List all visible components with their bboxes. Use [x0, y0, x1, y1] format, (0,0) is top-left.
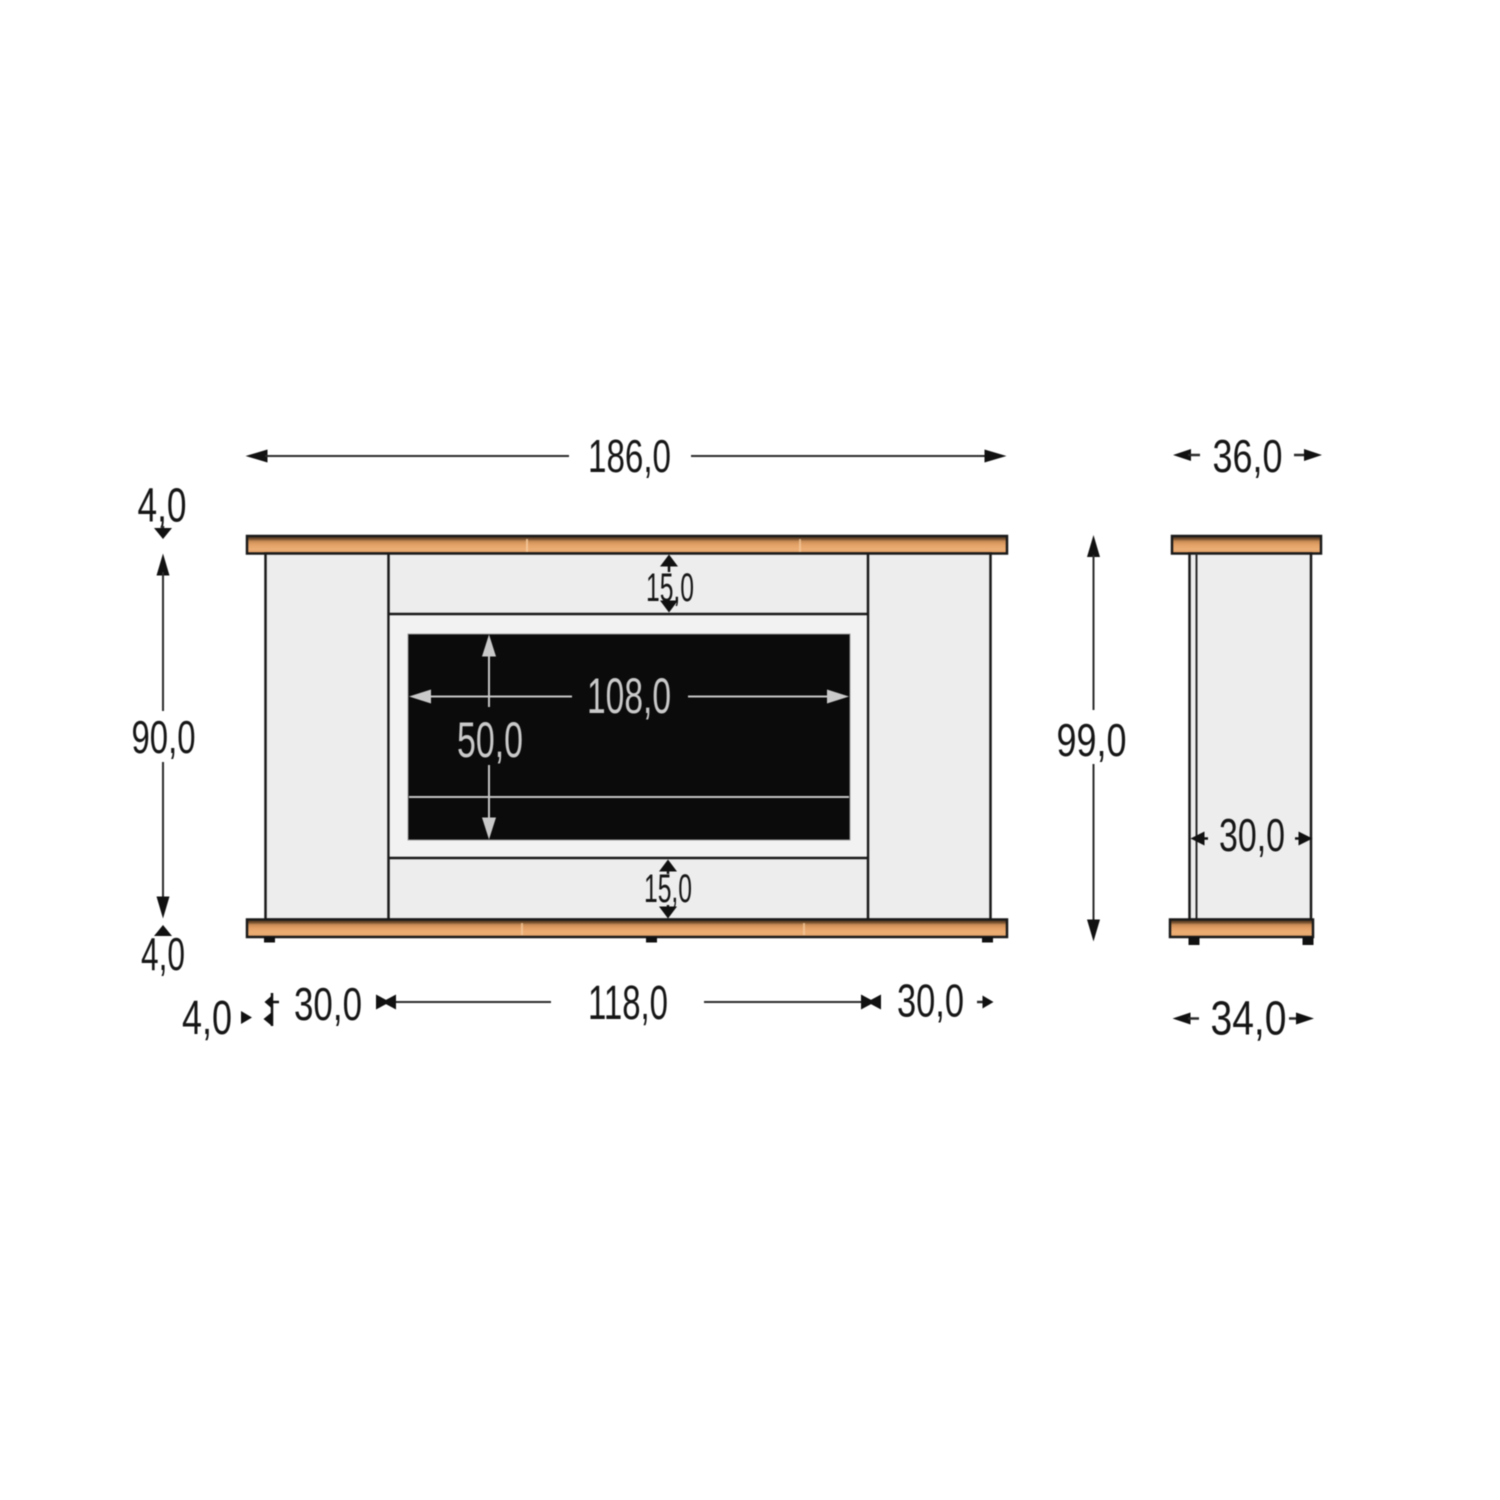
svg-text:90,0: 90,0 [132, 711, 196, 763]
svg-text:30,0: 30,0 [294, 978, 362, 1030]
svg-text:30,0: 30,0 [1219, 809, 1285, 861]
svg-text:108,0: 108,0 [587, 668, 671, 724]
svg-text:30,0: 30,0 [897, 975, 964, 1027]
svg-text:34,0: 34,0 [1211, 993, 1287, 1046]
svg-text:4,0: 4,0 [182, 992, 232, 1045]
svg-text:186,0: 186,0 [588, 430, 671, 482]
svg-text:4,0: 4,0 [141, 928, 185, 980]
svg-text:36,0: 36,0 [1213, 430, 1283, 482]
svg-text:15,0: 15,0 [644, 867, 692, 911]
svg-text:118,0: 118,0 [588, 977, 668, 1030]
svg-text:99,0: 99,0 [1057, 714, 1127, 766]
svg-text:50,0: 50,0 [457, 712, 523, 768]
svg-text:4,0: 4,0 [138, 480, 187, 533]
